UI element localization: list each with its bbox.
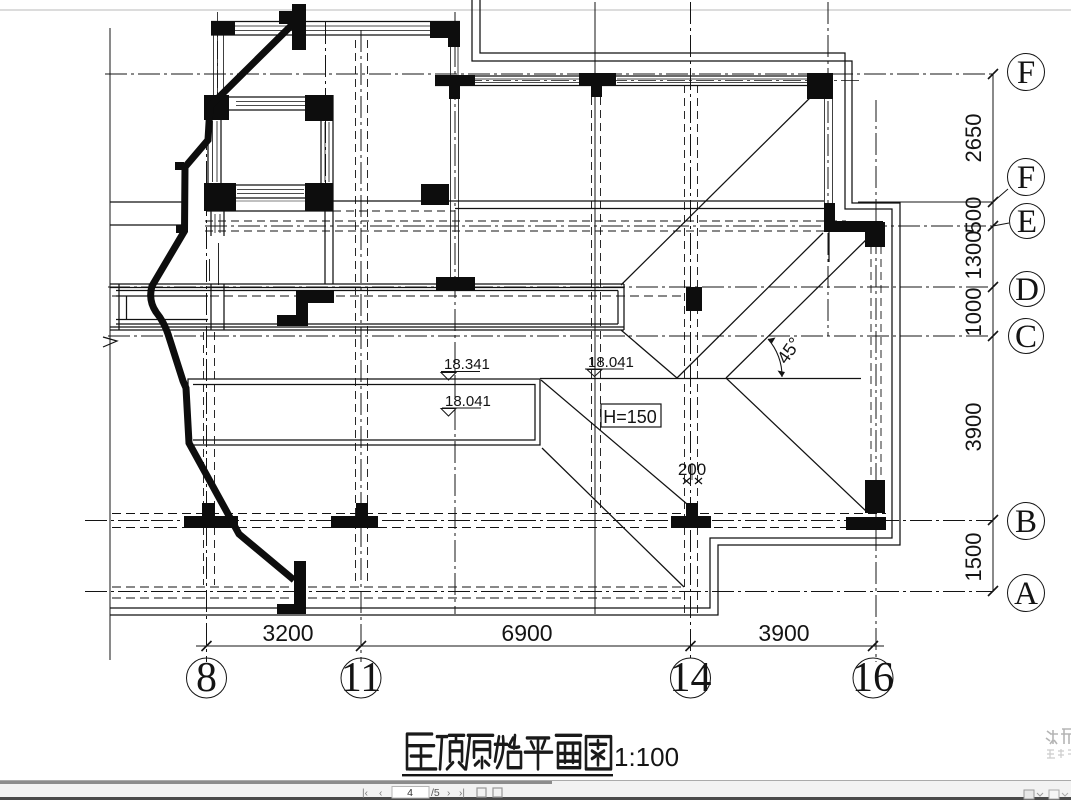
svg-text:3900: 3900 bbox=[758, 620, 809, 646]
svg-text:E: E bbox=[1017, 204, 1037, 240]
svg-text:1300: 1300 bbox=[961, 231, 986, 280]
svg-text:16: 16 bbox=[852, 655, 894, 701]
svg-text:A: A bbox=[1014, 576, 1038, 612]
svg-text:›|: ›| bbox=[459, 788, 465, 799]
svg-text:18.041: 18.041 bbox=[588, 354, 634, 371]
svg-text:F: F bbox=[1017, 160, 1035, 196]
svg-text:|‹: |‹ bbox=[362, 788, 368, 799]
svg-text:F: F bbox=[1017, 55, 1035, 91]
svg-text:8: 8 bbox=[196, 655, 217, 701]
svg-text:1500: 1500 bbox=[961, 533, 986, 582]
svg-text:2650: 2650 bbox=[961, 114, 986, 163]
svg-text:H=150: H=150 bbox=[603, 407, 657, 427]
svg-text:B: B bbox=[1015, 504, 1037, 540]
svg-text:3200: 3200 bbox=[262, 620, 313, 646]
svg-text:6900: 6900 bbox=[501, 620, 552, 646]
svg-text:3900: 3900 bbox=[961, 403, 986, 452]
svg-text:D: D bbox=[1015, 272, 1039, 308]
svg-text:500: 500 bbox=[961, 197, 986, 234]
svg-text:18.341: 18.341 bbox=[444, 356, 490, 373]
svg-text:/5: /5 bbox=[431, 787, 440, 799]
svg-text:18.041: 18.041 bbox=[445, 393, 491, 410]
svg-text:11: 11 bbox=[341, 655, 381, 701]
svg-text:C: C bbox=[1015, 319, 1037, 355]
svg-text:4: 4 bbox=[407, 787, 413, 799]
svg-text:1:100: 1:100 bbox=[614, 742, 679, 772]
svg-text:14: 14 bbox=[670, 655, 712, 701]
svg-text:1000: 1000 bbox=[961, 288, 986, 337]
svg-text:›: › bbox=[447, 788, 450, 799]
svg-text:‹: ‹ bbox=[379, 788, 382, 799]
